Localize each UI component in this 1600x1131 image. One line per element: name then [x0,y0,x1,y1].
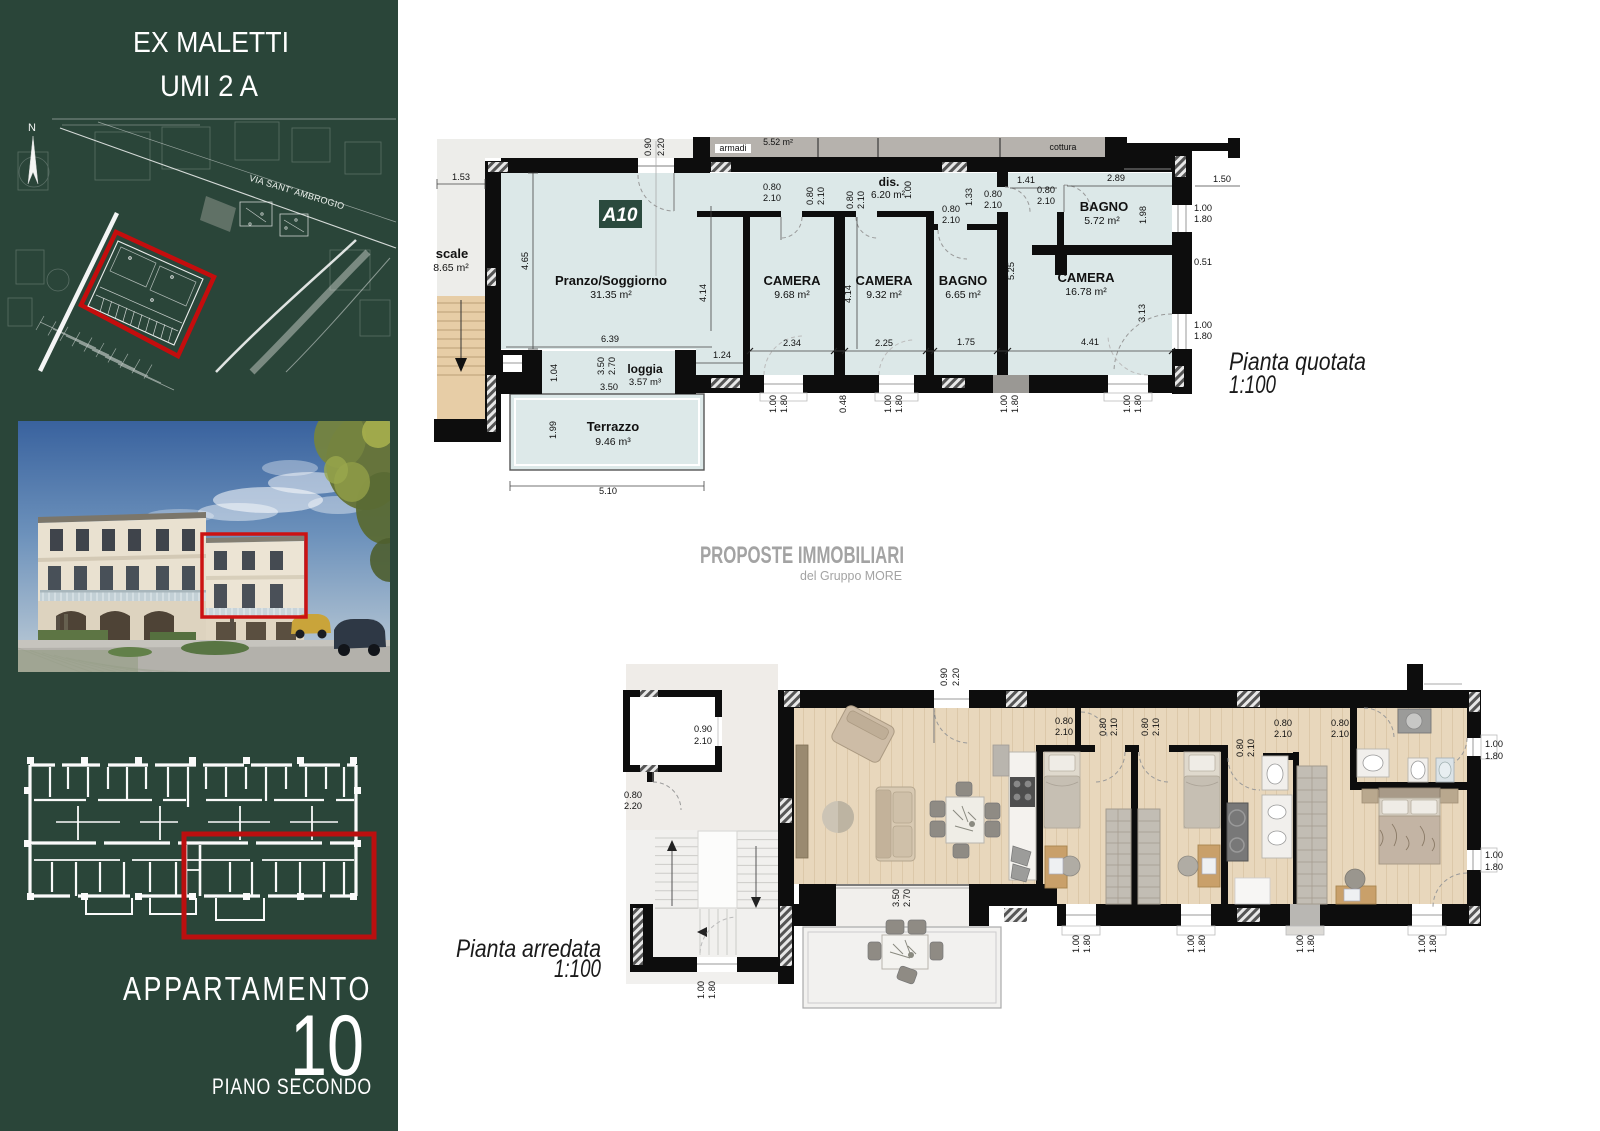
svg-text:del Gruppo MORE: del Gruppo MORE [800,568,902,583]
svg-text:1.00: 1.00 [1071,935,1081,953]
svg-text:1.00: 1.00 [1194,203,1212,213]
svg-text:Pranzo/Soggiorno: Pranzo/Soggiorno [555,273,667,288]
svg-text:6.20 m²: 6.20 m² [871,190,906,201]
svg-text:1.00: 1.00 [1485,850,1503,860]
svg-text:1.80: 1.80 [894,395,904,413]
svg-text:9.46 m³: 9.46 m³ [595,436,631,448]
svg-text:PROPOSTE IMMOBILIARI: PROPOSTE IMMOBILIARI [700,542,904,569]
svg-text:0.90: 0.90 [939,668,949,686]
svg-text:5.25: 5.25 [1006,262,1016,280]
svg-text:1.33: 1.33 [964,188,974,206]
svg-text:2.10: 2.10 [984,200,1002,210]
svg-text:1.04: 1.04 [549,364,559,382]
svg-text:4.14: 4.14 [698,284,708,302]
svg-text:1.80: 1.80 [1133,395,1143,413]
svg-text:CAMERA: CAMERA [1057,270,1115,285]
svg-text:cottura: cottura [1050,142,1077,152]
svg-text:1.00: 1.00 [1186,935,1196,953]
svg-text:2.20: 2.20 [656,138,666,156]
svg-text:N: N [28,122,36,134]
svg-text:0.90: 0.90 [694,724,712,734]
svg-text:1.00: 1.00 [1485,739,1503,749]
svg-text:2.10: 2.10 [856,191,866,209]
svg-text:1:100: 1:100 [1229,371,1276,399]
svg-text:1.00: 1.00 [1122,395,1132,413]
svg-text:1.80: 1.80 [1485,751,1503,761]
svg-text:PIANO SECONDO: PIANO SECONDO [212,1074,372,1099]
svg-text:0.80: 0.80 [984,189,1002,199]
svg-text:1.75: 1.75 [957,337,975,347]
svg-text:1.00: 1.00 [999,395,1009,413]
svg-text:2.10: 2.10 [942,215,960,225]
svg-text:0.80: 0.80 [763,182,781,192]
svg-text:1.98: 1.98 [1138,206,1148,224]
svg-text:2.89: 2.89 [1107,173,1125,183]
svg-text:5.10: 5.10 [599,486,617,496]
svg-text:2.34: 2.34 [783,338,801,348]
svg-text:UMI 2 A: UMI 2 A [160,70,258,103]
svg-text:scale: scale [436,246,469,261]
svg-text:0.80: 0.80 [845,191,855,209]
svg-text:2.10: 2.10 [1109,718,1119,736]
svg-text:1.99: 1.99 [548,421,558,439]
svg-text:0.80: 0.80 [1055,716,1073,726]
svg-text:9.68 m²: 9.68 m² [774,289,810,301]
svg-text:2.20: 2.20 [951,668,961,686]
svg-text:A10: A10 [602,205,638,226]
svg-text:2.25: 2.25 [875,338,893,348]
svg-text:1.80: 1.80 [1306,935,1316,953]
svg-text:1.80: 1.80 [707,981,717,999]
svg-text:0.80: 0.80 [1037,185,1055,195]
svg-text:3.57 m³: 3.57 m³ [629,377,661,388]
svg-text:1.24: 1.24 [713,350,731,360]
svg-text:6.65 m²: 6.65 m² [945,289,981,301]
svg-text:1.80: 1.80 [779,395,789,413]
svg-text:3.13: 3.13 [1137,304,1147,322]
svg-text:4.41: 4.41 [1081,337,1099,347]
svg-text:0.80: 0.80 [805,187,815,205]
svg-text:2.10: 2.10 [1055,727,1073,737]
svg-text:2.10: 2.10 [1274,729,1292,739]
svg-text:2.10: 2.10 [1246,739,1256,757]
svg-text:1.80: 1.80 [1428,935,1438,953]
svg-text:1.00: 1.00 [1194,320,1212,330]
svg-text:CAMERA: CAMERA [763,273,821,288]
svg-text:4.14: 4.14 [843,285,853,303]
svg-text:1.00: 1.00 [1417,935,1427,953]
svg-text:EX MALETTI: EX MALETTI [133,27,289,59]
svg-text:2.20: 2.20 [624,801,642,811]
svg-text:1.80: 1.80 [1485,862,1503,872]
svg-text:0.80: 0.80 [1331,718,1349,728]
svg-text:CAMERA: CAMERA [855,273,913,288]
svg-text:31.35 m²: 31.35 m² [590,289,632,301]
svg-text:1.80: 1.80 [1194,331,1212,341]
svg-text:0.80: 0.80 [624,790,642,800]
svg-text:1.00: 1.00 [696,981,706,999]
svg-text:0.51: 0.51 [1194,257,1212,267]
svg-text:8.65 m²: 8.65 m² [433,262,469,274]
svg-text:armadi: armadi [720,143,747,153]
svg-text:5.52 m²: 5.52 m² [763,137,793,147]
svg-text:0.80: 0.80 [1098,718,1108,736]
svg-text:2.10: 2.10 [1037,196,1055,206]
svg-text:2.10: 2.10 [1331,729,1349,739]
svg-text:5.72 m²: 5.72 m² [1084,215,1120,227]
svg-text:1.00: 1.00 [1295,935,1305,953]
svg-text:1.80: 1.80 [1010,395,1020,413]
svg-text:2.10: 2.10 [694,736,712,746]
svg-text:loggia: loggia [627,362,663,376]
svg-text:2.10: 2.10 [763,193,781,203]
svg-text:1.80: 1.80 [1194,214,1212,224]
svg-text:3.50: 3.50 [596,357,606,375]
svg-text:0.80: 0.80 [1235,739,1245,757]
svg-text:dis.: dis. [879,175,900,189]
svg-text:16.78 m²: 16.78 m² [1065,286,1107,298]
svg-text:1.80: 1.80 [1082,935,1092,953]
svg-text:2.10: 2.10 [816,187,826,205]
svg-text:0.80: 0.80 [1140,718,1150,736]
svg-text:1:100: 1:100 [554,955,601,983]
svg-text:2.70: 2.70 [607,357,617,375]
svg-text:0.80: 0.80 [1274,718,1292,728]
svg-text:BAGNO: BAGNO [939,273,987,288]
svg-text:1.41: 1.41 [1017,175,1035,185]
svg-text:1.50: 1.50 [1213,174,1231,184]
svg-text:6.39: 6.39 [601,334,619,344]
svg-text:4.65: 4.65 [520,252,530,270]
svg-text:0.80: 0.80 [942,204,960,214]
svg-text:1.80: 1.80 [1197,935,1207,953]
svg-text:2.10: 2.10 [1151,718,1161,736]
svg-text:2.70: 2.70 [902,889,912,907]
svg-text:Terrazzo: Terrazzo [587,419,640,434]
svg-text:BAGNO: BAGNO [1080,199,1128,214]
svg-text:3.50: 3.50 [600,382,618,392]
svg-text:1.00: 1.00 [768,395,778,413]
svg-text:9.32 m²: 9.32 m² [866,289,902,301]
svg-text:1.53: 1.53 [452,172,470,182]
svg-text:1.00: 1.00 [883,395,893,413]
svg-text:3.50: 3.50 [891,889,901,907]
svg-text:0.90: 0.90 [643,138,653,156]
svg-text:0.48: 0.48 [838,395,848,413]
